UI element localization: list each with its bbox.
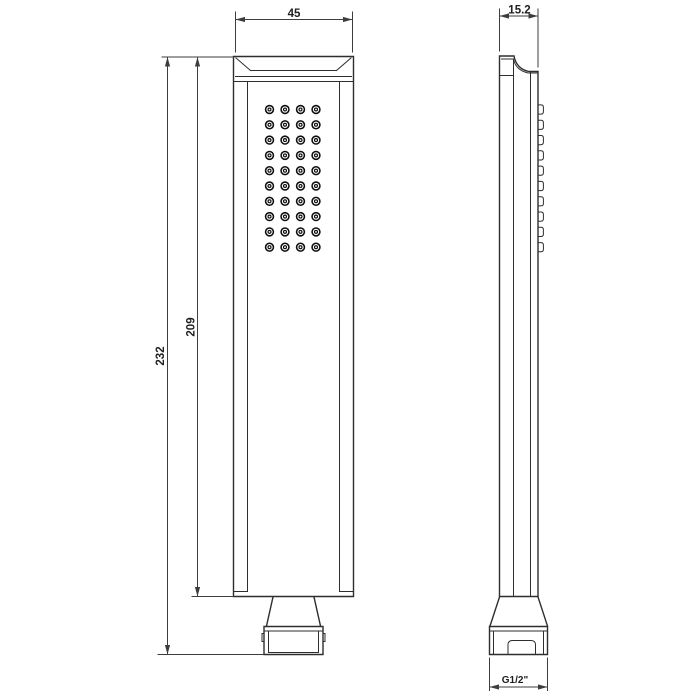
dimension-depth: 15.2: [500, 5, 539, 68]
side-inner-face-lines: [514, 59, 531, 597]
nozzle-profile-bump: [539, 151, 544, 160]
nozzle: [311, 166, 320, 175]
arrowhead-left: [236, 17, 246, 22]
nozzle: [296, 166, 305, 175]
side-body-outline: [500, 56, 539, 597]
nozzle: [311, 105, 320, 114]
nozzle: [280, 212, 289, 221]
side-outlet-connector: [490, 597, 548, 655]
front-cap-bevels: [234, 58, 354, 82]
dimension-width: 45: [236, 8, 353, 52]
nozzle: [280, 105, 289, 114]
dimension-total-height-label: 232: [155, 346, 167, 365]
nozzle: [280, 243, 289, 252]
nozzle: [265, 243, 274, 252]
nozzle: [311, 135, 320, 144]
side-view: [490, 56, 548, 655]
front-outlet-connector: [262, 597, 325, 655]
front-inner-face-lines: [248, 82, 340, 592]
dimension-thread-label: G1/2": [502, 675, 529, 686]
nozzle-profile-bump: [539, 105, 544, 114]
arrowhead-top: [165, 57, 170, 67]
nozzle: [265, 166, 274, 175]
dimension-body-height-label: 209: [186, 317, 198, 336]
side-hose-nut-details: [490, 631, 548, 655]
front-view: [234, 57, 354, 655]
front-hose-nut-details: [262, 631, 325, 653]
nozzle: [265, 197, 274, 206]
nozzle: [280, 151, 289, 160]
side-cap-details: [500, 59, 539, 76]
nozzle: [296, 120, 305, 129]
nozzle: [311, 197, 320, 206]
arrowhead-bottom: [165, 645, 170, 655]
nozzle: [280, 166, 289, 175]
nozzle-profile-bump: [539, 227, 544, 236]
nozzle: [265, 181, 274, 190]
nozzle: [311, 151, 320, 160]
nozzle: [296, 105, 305, 114]
dimension-body-height: 209: [186, 57, 234, 597]
nozzle: [311, 243, 320, 252]
nozzle-profile-bump: [539, 212, 544, 221]
dimension-thread: G1/2": [490, 658, 548, 691]
side-neck-taper: [490, 597, 548, 626]
nozzle: [280, 135, 289, 144]
technical-drawing-canvas: 45 15.2 232 209 G1/2": [0, 0, 700, 700]
nozzle-grid: [265, 105, 321, 252]
nozzle: [296, 227, 305, 236]
nozzle-profile-bump: [539, 197, 544, 206]
nozzle-profile-bump: [539, 136, 544, 145]
nozzle: [265, 227, 274, 236]
nozzle: [311, 120, 320, 129]
nozzle: [296, 181, 305, 190]
arrowhead-right: [343, 17, 353, 22]
dimension-depth-extension-lines: [500, 9, 539, 67]
nozzle: [280, 227, 289, 236]
nozzle: [265, 120, 274, 129]
nozzle-profile-bump: [539, 181, 544, 190]
nozzle: [265, 151, 274, 160]
dimension-total-height-extension-lines: [158, 57, 264, 655]
nozzle-bumps: [539, 105, 544, 252]
front-neck-taper: [267, 597, 321, 626]
nozzle: [296, 212, 305, 221]
nozzle: [280, 197, 289, 206]
nozzle: [311, 181, 320, 190]
nozzle: [265, 212, 274, 221]
nozzle: [280, 120, 289, 129]
arrowhead-left: [490, 684, 500, 689]
nozzle: [296, 197, 305, 206]
nozzle-profile-bump: [539, 243, 544, 252]
arrowhead-bottom: [195, 587, 200, 597]
nozzle: [265, 105, 274, 114]
arrowhead-right: [538, 684, 548, 689]
nozzle: [311, 227, 320, 236]
nozzle-profile-bump: [539, 166, 544, 175]
nozzle: [296, 135, 305, 144]
dimension-width-label: 45: [288, 8, 301, 20]
dimension-depth-label: 15.2: [508, 5, 530, 17]
arrowhead-top: [195, 57, 200, 67]
handshower-technical-drawing: 45 15.2 232 209 G1/2": [0, 0, 700, 700]
nozzle: [280, 181, 289, 190]
nozzle: [311, 212, 320, 221]
nozzle: [296, 243, 305, 252]
nozzle-profile-bump: [539, 120, 544, 129]
front-body-outline: [234, 57, 354, 597]
nozzle: [265, 135, 274, 144]
nozzle: [296, 151, 305, 160]
